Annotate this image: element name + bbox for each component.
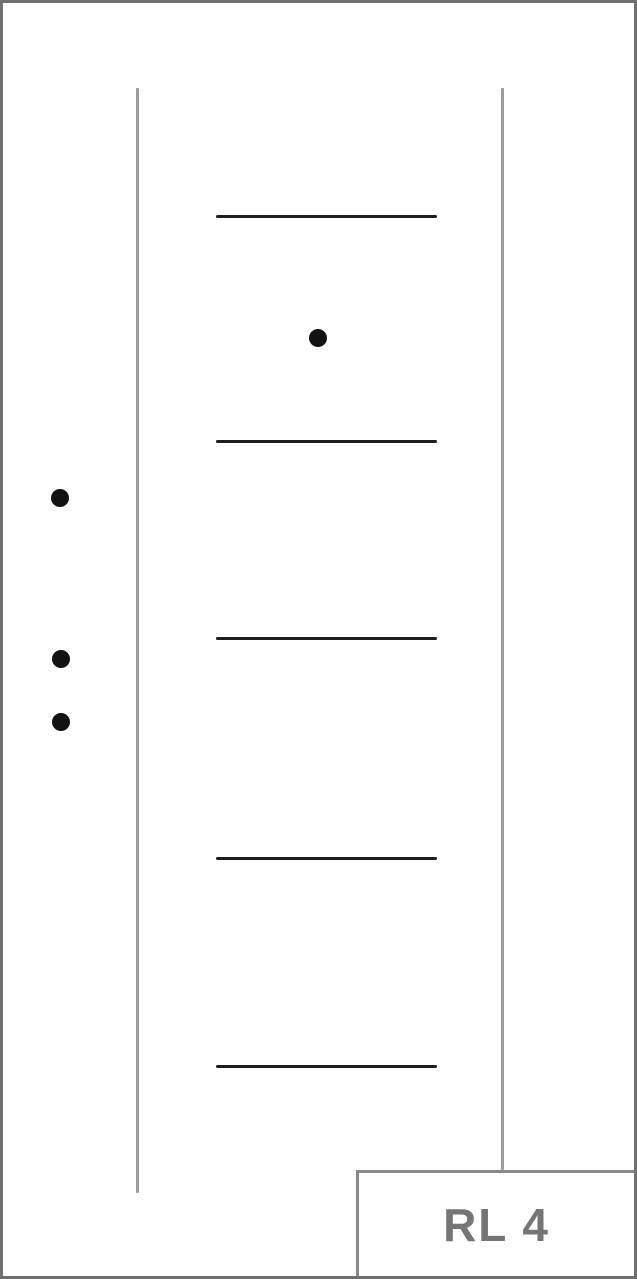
- model-label-box: RL 4: [356, 1170, 637, 1279]
- groove-line-1: [216, 215, 437, 218]
- design-panel-figure: RL 4: [0, 0, 637, 1279]
- groove-line-2: [216, 440, 437, 443]
- dot-2: [51, 489, 69, 507]
- dot-1: [309, 329, 327, 347]
- groove-line-5: [216, 1065, 437, 1068]
- dot-4: [52, 713, 70, 731]
- groove-line-3: [216, 637, 437, 640]
- groove-line-4: [216, 857, 437, 860]
- right-guide-line: [501, 88, 504, 1170]
- model-label: RL 4: [443, 1202, 550, 1248]
- dot-3: [52, 650, 70, 668]
- left-guide-line: [136, 88, 139, 1193]
- diagram-layer: [0, 0, 637, 1279]
